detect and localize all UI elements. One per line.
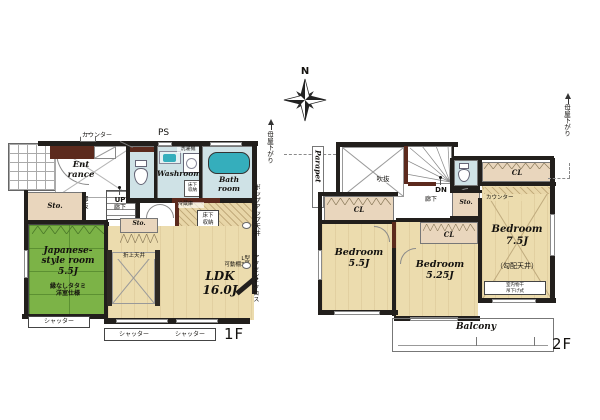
closet-diagonal xyxy=(95,147,115,158)
closet-label: CL xyxy=(420,231,478,239)
ldk-label: LDK 16.0J xyxy=(188,270,252,298)
japanese-room-label: Japanese- style room 5.5J xyxy=(28,246,108,277)
accent-wall-shoe-cabinet xyxy=(50,146,94,159)
shutter-box: シャッター シャッター xyxy=(104,328,216,341)
dashed-leader xyxy=(548,178,570,179)
storage2-label: Sto. xyxy=(120,221,158,228)
accent-wall xyxy=(404,146,408,184)
callout-bubble xyxy=(242,222,251,229)
shutter-box: シャッター xyxy=(28,316,90,328)
shutter-label: シャッター xyxy=(111,332,157,339)
popup-ceiling-label: ポップアップ天井 xyxy=(252,184,259,252)
dashed-leader xyxy=(284,154,336,155)
floorplan-canvas: N Ent rance 上部 吹抜 Sto. xyxy=(0,0,600,420)
indoor-drying-box: 室内物干 吊下げ式 xyxy=(484,281,546,295)
roof-lowered-label-left: 母屋下がり xyxy=(265,131,272,189)
window xyxy=(176,319,218,323)
void-cross-lines xyxy=(343,148,403,196)
leader-line xyxy=(119,189,120,195)
shutter-label: シャッター xyxy=(167,332,213,339)
wall xyxy=(450,190,482,193)
bedroom3-label: Bedroom 7.5J xyxy=(486,224,548,247)
japanese-room-note: 縁なしタタミ 洋室仕様 xyxy=(28,284,108,298)
entrance-label: Ent rance xyxy=(58,161,104,181)
balcony-tick xyxy=(534,337,535,346)
balcony-inner-line xyxy=(398,345,548,346)
counter-2f xyxy=(484,187,550,194)
toilet-icon xyxy=(135,160,147,167)
underfloor-storage-label: 床下 収納 xyxy=(198,213,218,226)
staircase-2f xyxy=(406,146,452,184)
indoor-drying-label: 室内物干 吊下げ式 xyxy=(485,283,545,295)
compass-icon xyxy=(282,77,328,123)
window xyxy=(116,319,168,323)
door-swing-arc xyxy=(146,204,160,218)
refrigerator-label: 冷蔵庫 xyxy=(178,202,204,208)
ceiling-cross-lines xyxy=(113,253,154,303)
window xyxy=(334,311,380,315)
roof-lowered-label-right: 母屋下がり xyxy=(562,104,569,162)
ps-label: PS xyxy=(158,128,176,138)
compass-north-label: N xyxy=(295,66,315,78)
bedroom1-label: Bedroom 5.5J xyxy=(330,248,388,270)
leader-line xyxy=(440,179,441,185)
floor2-label: 2F xyxy=(552,336,588,353)
bathroom-label: Bath room xyxy=(206,176,252,193)
door-swing-arc xyxy=(160,204,174,218)
closet-zigzag xyxy=(120,234,158,243)
closet-label: CL xyxy=(324,206,394,214)
void-room xyxy=(342,147,404,197)
entrance-closet xyxy=(94,146,116,159)
window xyxy=(550,214,555,256)
bathtub-icon xyxy=(208,152,250,174)
entrance-porch-tiles xyxy=(8,143,56,191)
bedroom2-label: Bedroom 5.25J xyxy=(410,260,470,282)
coffered-ceiling-label: 折上天井 xyxy=(113,253,155,259)
leader-line xyxy=(271,125,272,130)
coffered-ceiling-edge xyxy=(155,250,160,306)
floor1-label: 1F xyxy=(224,326,260,343)
closet-zigzag xyxy=(32,226,104,234)
sink-icon xyxy=(163,154,176,162)
underfloor-storage-label: 床下 収納 xyxy=(185,183,200,194)
accent-cloth-label: アクセントクロス xyxy=(251,254,258,316)
down-label: DN xyxy=(431,186,451,194)
washroom-label: Washroom xyxy=(157,170,201,179)
washing-machine-label: 洗濯機 xyxy=(177,147,199,153)
wall xyxy=(126,144,130,200)
callout-bubble xyxy=(242,262,251,269)
balcony-label: Balcony xyxy=(446,322,506,332)
void-label: 吹抜 xyxy=(370,176,396,183)
wall xyxy=(450,158,454,188)
balcony-tick xyxy=(476,337,477,346)
closet-label: CL xyxy=(482,169,552,177)
hallway-label-2f: 廊下 xyxy=(420,197,442,204)
shutter-label: シャッター xyxy=(29,319,89,326)
storage1-label: Sto. xyxy=(26,202,84,210)
coffered-ceiling-box xyxy=(112,252,155,304)
counter-label-1f: カウンター xyxy=(82,133,128,140)
dashed-leader xyxy=(569,163,570,178)
window xyxy=(492,299,536,303)
counter-label-2f: カウンター xyxy=(486,195,522,201)
closet-zigzag xyxy=(327,198,391,205)
bedroom3-note: （勾配天井） xyxy=(484,262,550,270)
hallway-label-1f: 廊下 xyxy=(107,205,133,212)
toilet-counter-accent xyxy=(130,147,154,152)
storage-2f-label: Sto. xyxy=(452,200,480,207)
washing-machine-drum xyxy=(186,158,197,169)
wall xyxy=(478,198,482,302)
